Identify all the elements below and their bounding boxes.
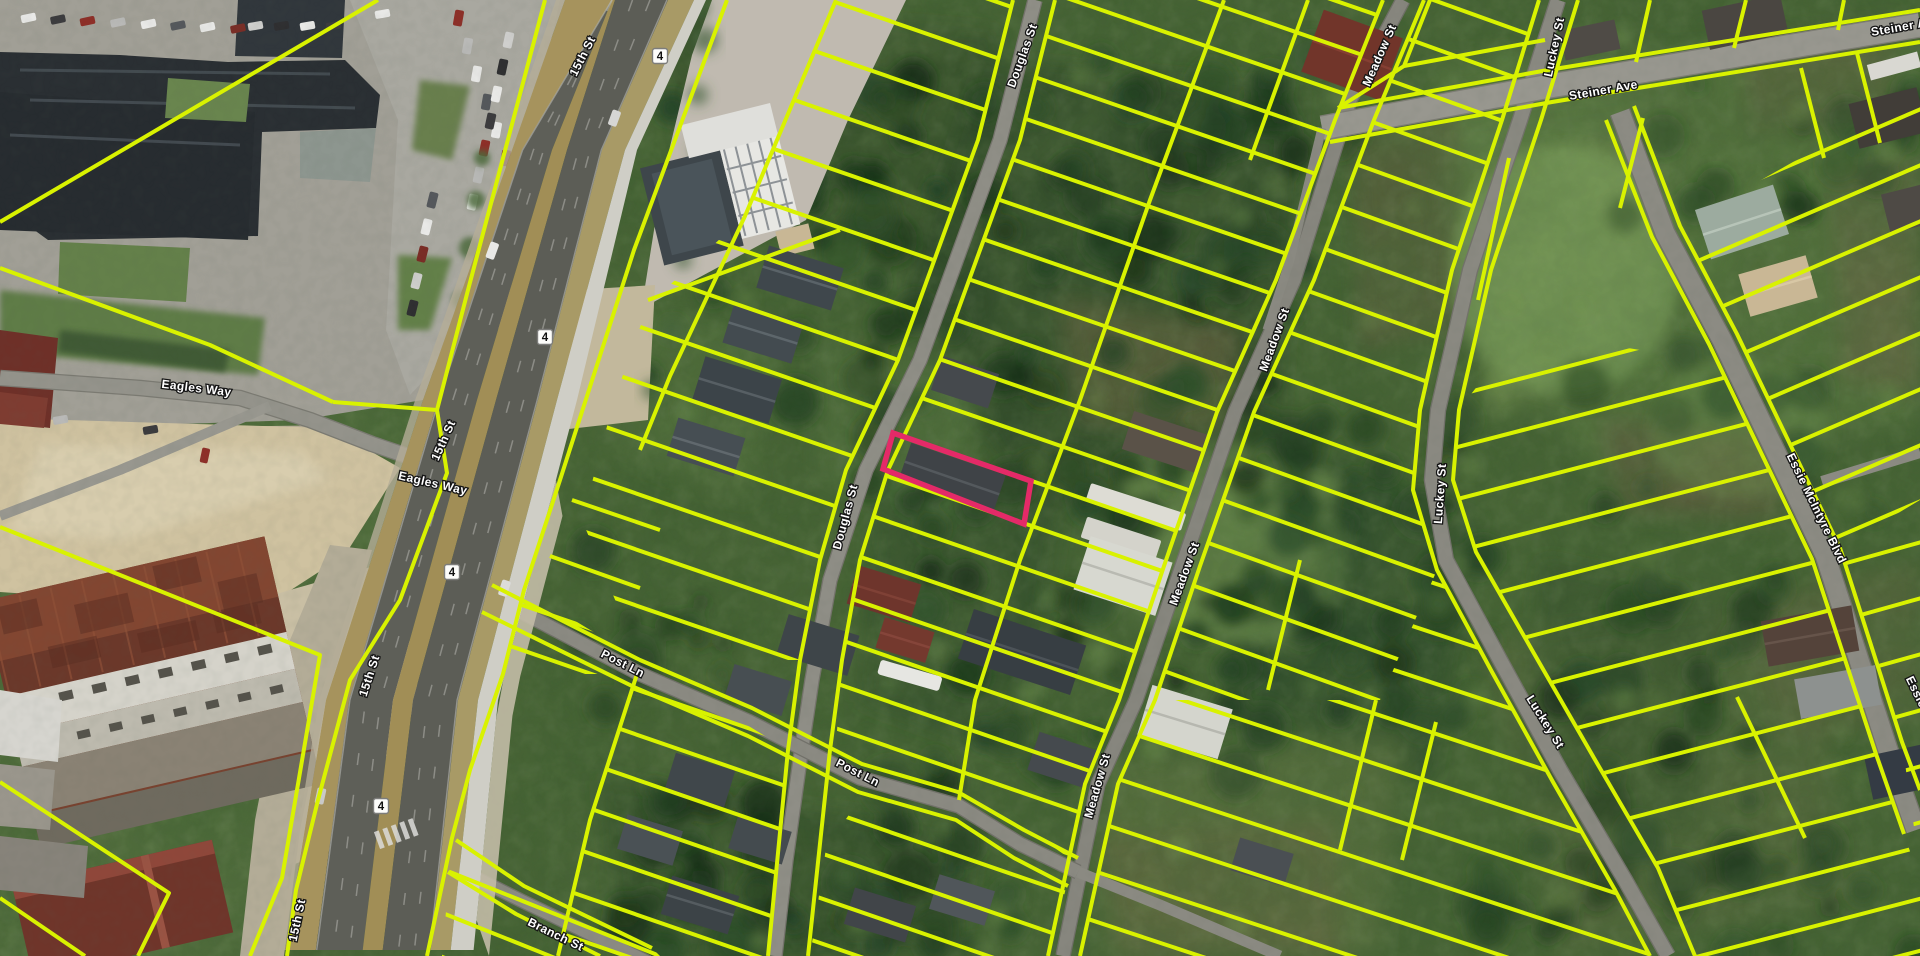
svg-text:4: 4 <box>378 801 385 813</box>
svg-text:4: 4 <box>542 332 549 344</box>
svg-text:4: 4 <box>657 51 664 63</box>
svg-text:4: 4 <box>449 567 456 579</box>
